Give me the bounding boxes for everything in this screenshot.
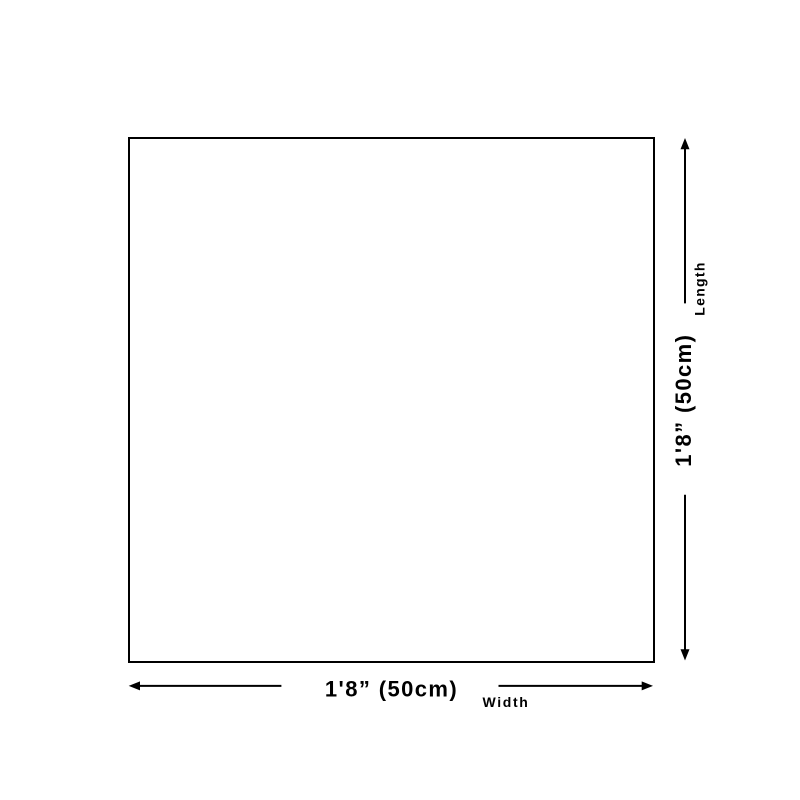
svg-text:1'8” (50cm): 1'8” (50cm)	[671, 334, 696, 467]
svg-text:1'8” (50cm): 1'8” (50cm)	[325, 677, 458, 702]
svg-text:Length: Length	[692, 261, 708, 315]
svg-text:Width: Width	[483, 694, 530, 710]
